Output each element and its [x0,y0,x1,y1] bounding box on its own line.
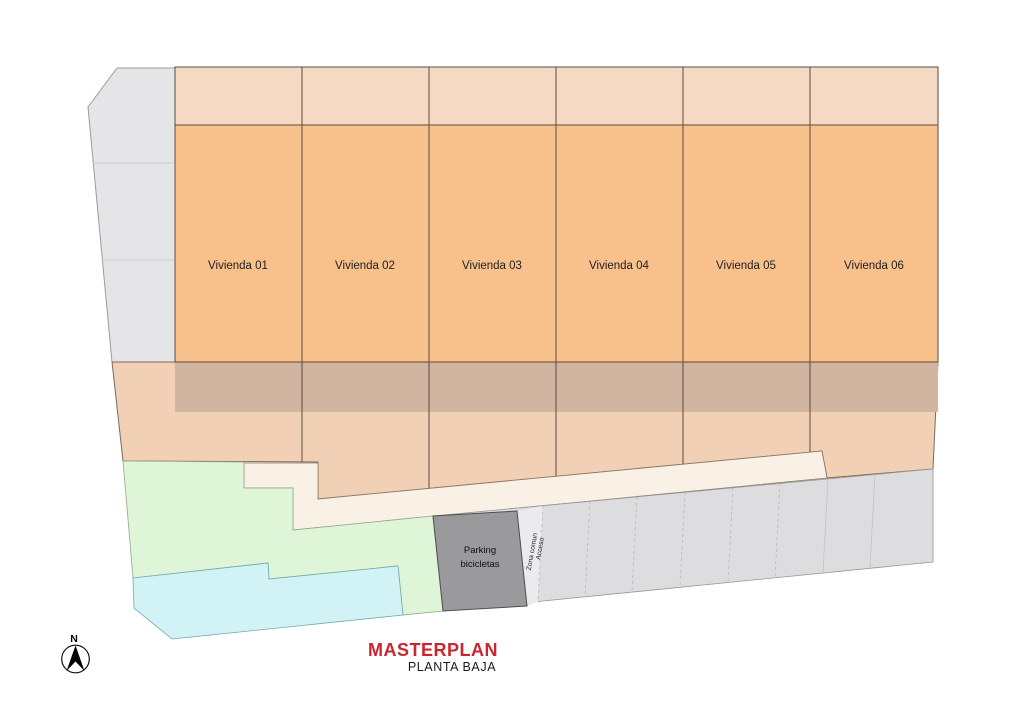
vivienda-label: Vivienda 05 [716,260,776,272]
vivienda-body [302,125,429,362]
vivienda-label: Vivienda 03 [462,260,522,272]
vivienda-terrace [810,67,938,125]
title-block: MASTERPLAN PLANTA BAJA [368,640,498,674]
vivienda-terrace [175,67,302,125]
vivienda-unit-05: Vivienda 05 [683,67,810,362]
bike-parking-label-line1: Parking [464,545,496,556]
masterplan-canvas: Vivienda 01 Vivienda 02 Vivienda 03 Vivi… [0,0,1024,724]
bike-parking-label-line2: bicicletas [460,559,499,570]
page-title: MASTERPLAN [368,640,498,660]
vivienda-unit-03: Vivienda 03 [429,67,556,362]
vivienda-unit-01: Vivienda 01 [175,67,302,362]
vivienda-body [175,125,302,362]
vivienda-label: Vivienda 06 [844,260,904,272]
vivienda-unit-02: Vivienda 02 [302,67,429,362]
vivienda-body [810,125,938,362]
vivienda-unit-04: Vivienda 04 [556,67,683,362]
north-compass: N [62,633,90,673]
sidewalk-area [88,68,175,362]
vivienda-body [556,125,683,362]
viviendas-block: Vivienda 01 Vivienda 02 Vivienda 03 Vivi… [175,67,938,362]
vivienda-terrace [302,67,429,125]
vivienda-label: Vivienda 04 [589,260,649,272]
vivienda-body [429,125,556,362]
page-subtitle: PLANTA BAJA [408,660,496,674]
vivienda-terrace [556,67,683,125]
vivienda-terrace [683,67,810,125]
vivienda-terrace [429,67,556,125]
sidewalk [88,68,175,362]
vivienda-label: Vivienda 02 [335,260,395,272]
north-label: N [70,633,78,645]
vivienda-label: Vivienda 01 [208,260,268,272]
bike-parking: Parking bicicletas [433,511,527,611]
vivienda-unit-06: Vivienda 06 [810,67,938,362]
pool-area [133,563,403,639]
vivienda-body [683,125,810,362]
